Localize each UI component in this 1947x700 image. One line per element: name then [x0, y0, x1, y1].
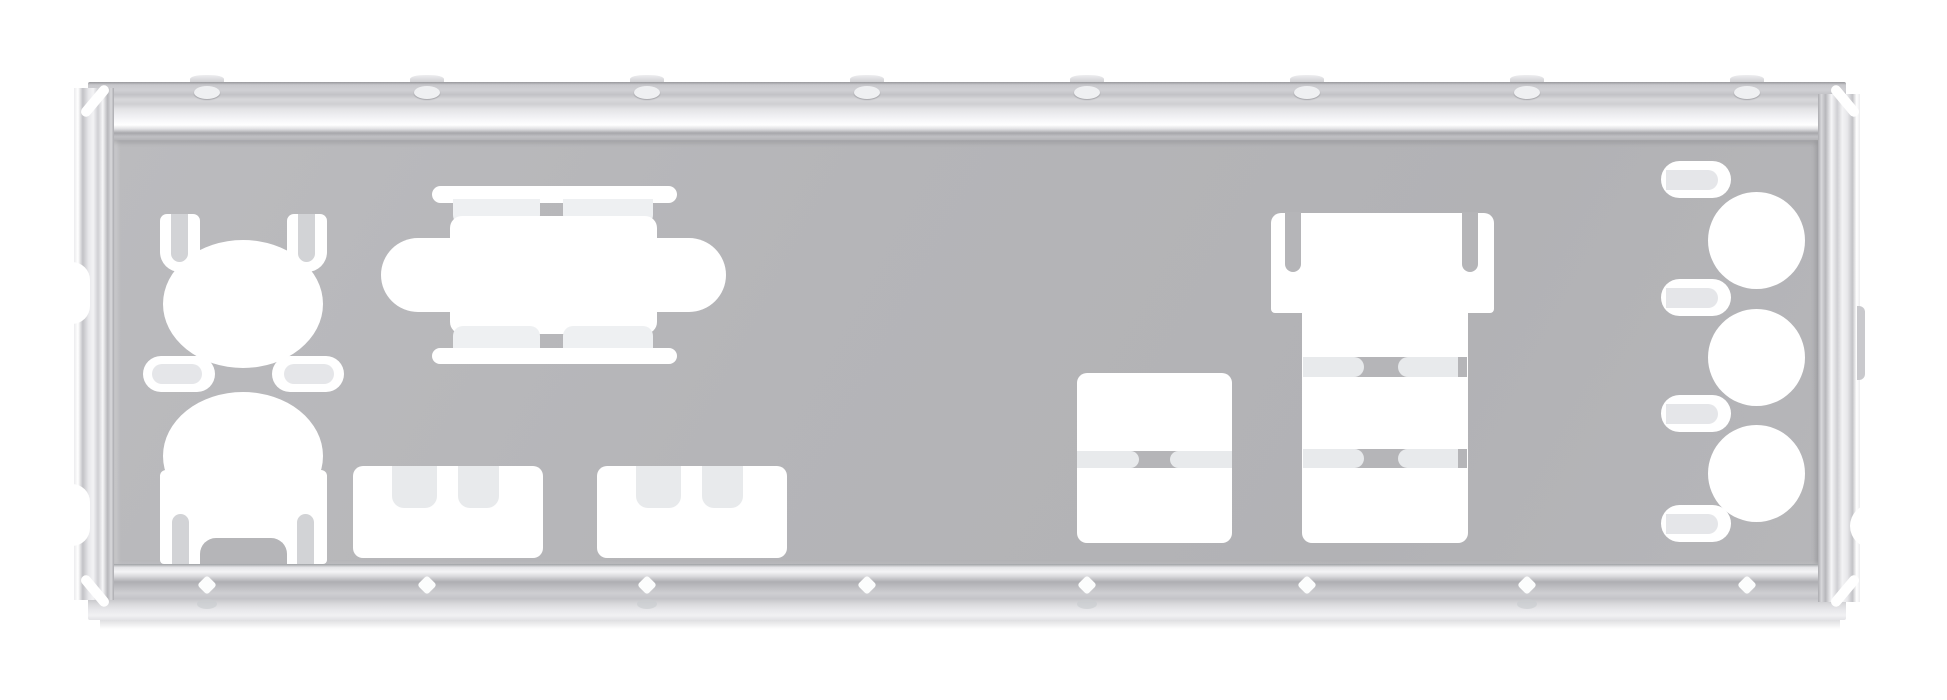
drop-shadow [100, 620, 1840, 629]
rivet-dot [1517, 599, 1537, 609]
rivet-dot [194, 86, 220, 99]
separator-tab [1303, 449, 1364, 468]
dsub-opening-center [450, 216, 657, 334]
dsub-opening-right-cap [646, 238, 726, 312]
fold-in-tab [392, 466, 437, 508]
round-port-opening [163, 240, 323, 368]
top-mounting-rail [88, 82, 1846, 140]
audio-jack-opening [1708, 309, 1805, 406]
hook-notch [1285, 212, 1301, 272]
rivet-dot [1074, 86, 1100, 99]
rivet-dot [634, 86, 660, 99]
spring-tab [1666, 404, 1718, 424]
bottom-mounting-rail [88, 564, 1846, 620]
separator-tab [1077, 451, 1139, 468]
fold-in-tab [636, 466, 681, 508]
separator-tab [1398, 357, 1458, 377]
screw-slot-bottom [432, 348, 677, 364]
hook-notch [1462, 212, 1478, 272]
grounding-tab [298, 214, 315, 262]
grounding-tab [297, 514, 314, 564]
fold-in-tab [458, 466, 499, 508]
grounding-tab [171, 214, 188, 262]
separator-tab [1303, 357, 1364, 377]
rivet-dot [414, 86, 440, 99]
spring-tab [1666, 514, 1718, 534]
clip-tab [284, 364, 334, 384]
rivet-dot [1734, 86, 1760, 99]
audio-jack-opening [1708, 192, 1805, 289]
bridge-web [200, 538, 287, 564]
fold-notch [64, 262, 90, 324]
fold-notch [64, 484, 90, 546]
separator-tab [1170, 451, 1232, 468]
photo-canvas [0, 0, 1947, 700]
dsub-opening-left-cap [381, 238, 461, 312]
clip-tab [152, 364, 202, 384]
rivet-dot [1514, 86, 1540, 99]
rivet-dot [1077, 599, 1097, 609]
fold-bump [1857, 306, 1865, 380]
spring-tab [1666, 288, 1718, 308]
usb-opening [597, 466, 787, 558]
rivet-dot [1294, 86, 1320, 99]
spring-tab [1666, 170, 1718, 190]
fold-in-tab [702, 466, 743, 508]
separator-tab [1398, 449, 1458, 468]
io-shield [0, 0, 1947, 700]
rivet-dot [637, 599, 657, 609]
grounding-tab [172, 514, 189, 564]
usb-stack-opening [1302, 290, 1468, 543]
rivet-dot [854, 86, 880, 99]
rivet-dot [197, 599, 217, 609]
usb-opening [353, 466, 543, 558]
